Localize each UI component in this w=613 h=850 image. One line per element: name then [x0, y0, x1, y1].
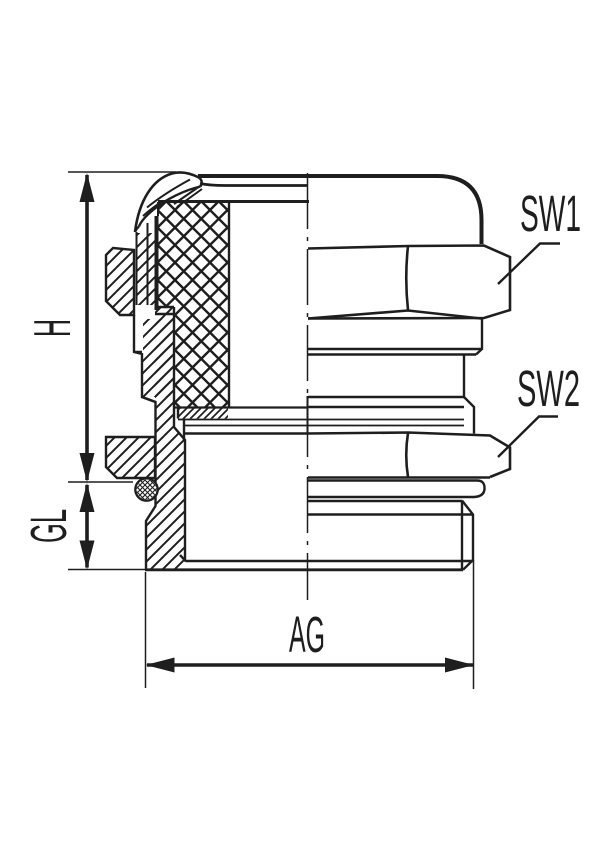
- svg-text:SW1: SW1: [520, 185, 581, 242]
- svg-text:GL: GL: [20, 509, 77, 543]
- svg-text:SW2: SW2: [517, 360, 580, 417]
- svg-text:H: H: [24, 319, 82, 337]
- svg-text:AG: AG: [289, 606, 325, 663]
